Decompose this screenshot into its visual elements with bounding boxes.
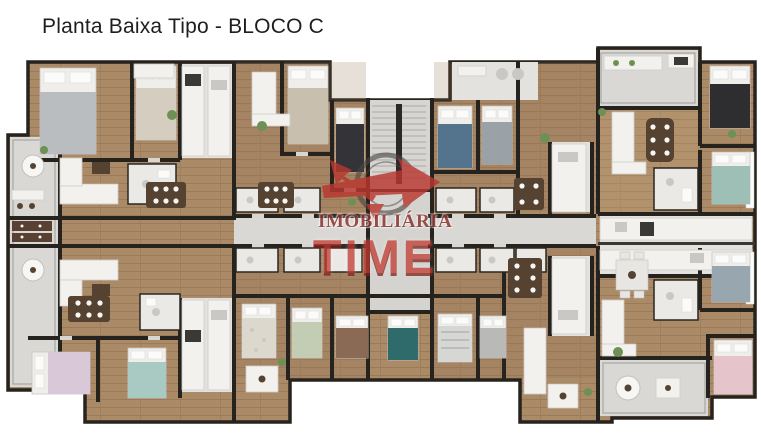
bed-floral-bottom-center: [242, 304, 276, 358]
bed-tan-center-left: [288, 66, 328, 144]
bed-dark-center: [336, 108, 364, 172]
round-table-balcony-1: [22, 155, 44, 177]
bed-grayblue-right: [712, 252, 750, 302]
square-table-balcony-br: [656, 378, 680, 398]
bed-darkteal-bottom-center: [388, 316, 418, 360]
wardrobe-bottom-center-right: [524, 328, 546, 394]
dining-center-left: [258, 182, 294, 208]
round-table-balcony-2: [22, 259, 44, 281]
dining-top-right: [646, 118, 674, 162]
closet-top-left: [134, 64, 174, 78]
dining-center-right-top: [514, 178, 544, 210]
nook-table-bottom-center-right: [548, 384, 578, 408]
bed-brown-bottom-center: [336, 316, 368, 358]
bed-lilac-bottom-left: [32, 352, 90, 394]
bed-blue-center: [438, 106, 472, 168]
bed-green-bottom-center: [292, 308, 322, 358]
bed-gray-center: [482, 106, 512, 164]
round-table-balcony-br: [616, 376, 640, 400]
dining-top-left: [146, 182, 186, 208]
bed-striped-bottom-center: [438, 314, 472, 362]
bed-teal-bottom-left: [128, 348, 166, 398]
floor-plan-page: { "page": { "title": "Planta Baixa Tipo …: [0, 0, 761, 433]
bed-gray-bottom-center: [480, 316, 506, 358]
dining-center-right-bottom: [508, 258, 542, 298]
floor-plan-image: [0, 0, 761, 433]
bed-gray-top-left: [40, 68, 96, 154]
bed-pink-bottom-right: [714, 340, 752, 394]
bed-teal-right: [712, 152, 750, 204]
nook-table-bottom-center-left: [246, 366, 278, 392]
dining-bottom-left: [68, 296, 110, 322]
bed-dark-top-right: [710, 66, 750, 128]
